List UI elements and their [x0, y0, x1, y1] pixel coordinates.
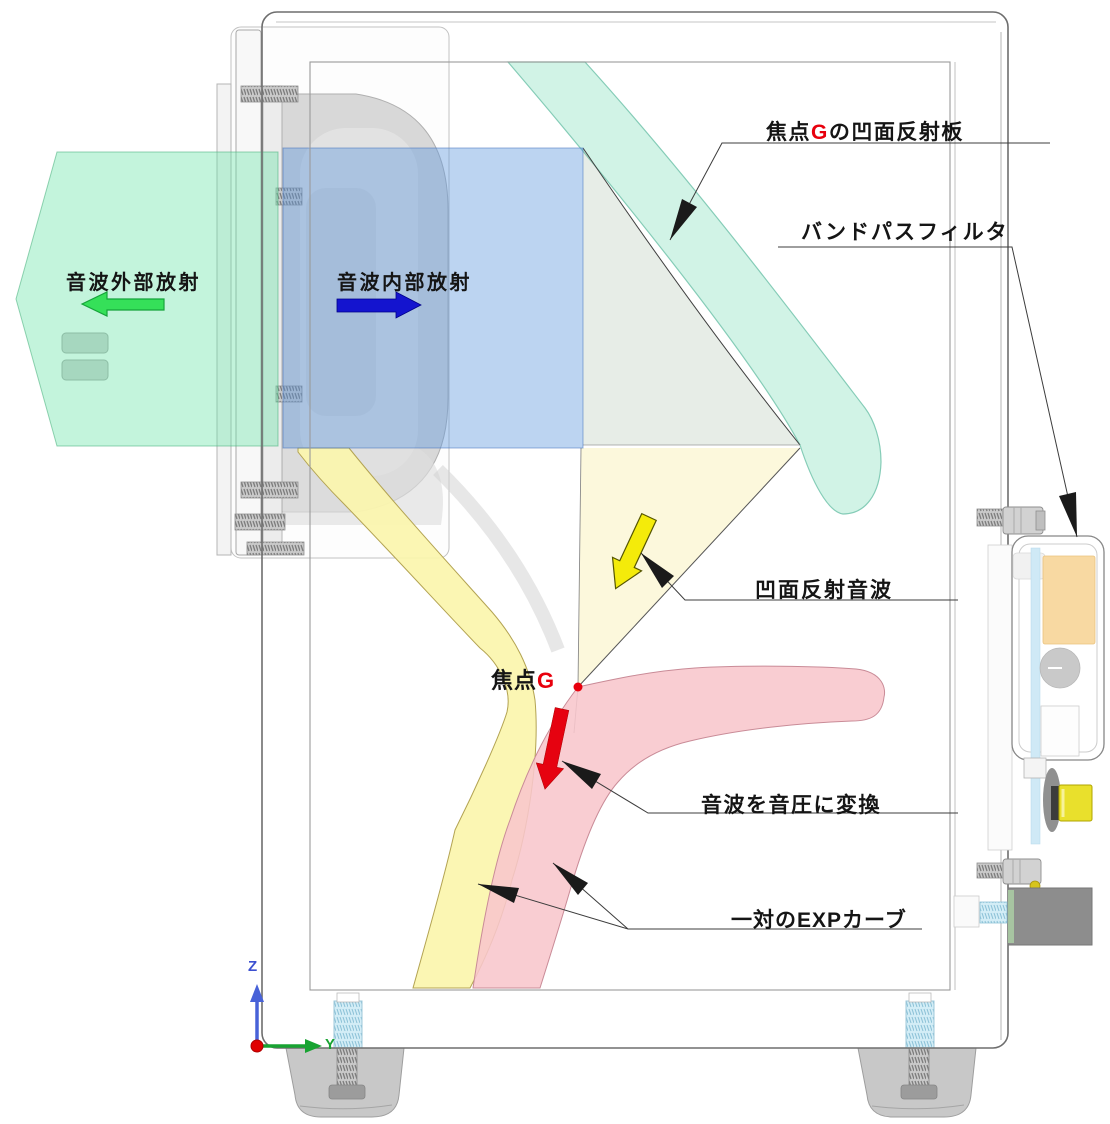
focal-point-dot: [574, 683, 583, 692]
left-foot: [286, 993, 404, 1117]
filter-blue-strip: [1031, 548, 1040, 844]
internal-radiation-beam: [283, 148, 583, 448]
device-diagram-svg: [0, 0, 1110, 1124]
bandpass-filter-assembly: [954, 507, 1104, 945]
internal-radiation-label: 音波内部放射: [337, 266, 472, 295]
focal-label-pre: 焦点: [491, 668, 537, 693]
reflector-label: 焦点Gの凹面反射板: [766, 116, 964, 146]
filter-white-box: [1041, 706, 1079, 756]
right-foot: [858, 993, 976, 1117]
screw: [241, 86, 298, 102]
mount-bolt: [1003, 859, 1041, 884]
gray-box-edge: [1008, 890, 1014, 943]
arrowhead-bandpass: [1059, 492, 1077, 537]
wall-bolt-hatch: [977, 509, 1003, 526]
screw: [235, 514, 285, 530]
terminal-block: [954, 896, 979, 927]
reflector-label-g: G: [811, 121, 829, 144]
gray-box: [1008, 888, 1092, 945]
origin-dot: [251, 1040, 263, 1052]
focal-point-label: 焦点G: [491, 663, 555, 695]
cyan-screw: [980, 902, 1007, 923]
external-radiation-label: 音波外部放射: [66, 266, 201, 295]
screw: [247, 542, 304, 555]
filter-orange-block: [1043, 556, 1095, 644]
reflector-label-post: の凹面反射板: [829, 121, 964, 144]
filter-mount-plate: [988, 545, 1012, 850]
bolt-cap: [1036, 511, 1045, 530]
bandpass-label: バンドパスフィルタ: [801, 216, 1009, 246]
reflector-label-pre: 焦点: [766, 121, 811, 144]
convert-label: 音波を音圧に変換: [701, 789, 881, 819]
exp-pair-label: 一対のEXPカーブ: [731, 904, 907, 934]
housing-neck: [1024, 758, 1046, 778]
wall-bolt-hatch: [977, 863, 1003, 878]
y-axis-label: Y: [325, 1036, 335, 1053]
reflected-wave-label: 凹面反射音波: [755, 574, 893, 604]
z-axis-label: Z: [248, 958, 257, 975]
diagram-canvas: 焦点Gの凹面反射板 バンドパスフィルタ 凹面反射音波 焦点G 音波を音圧に変換 …: [0, 0, 1110, 1124]
coordinate-axes: [250, 984, 322, 1053]
screw: [241, 482, 298, 498]
connector-base: [1051, 786, 1059, 820]
focal-label-g: G: [537, 668, 555, 693]
